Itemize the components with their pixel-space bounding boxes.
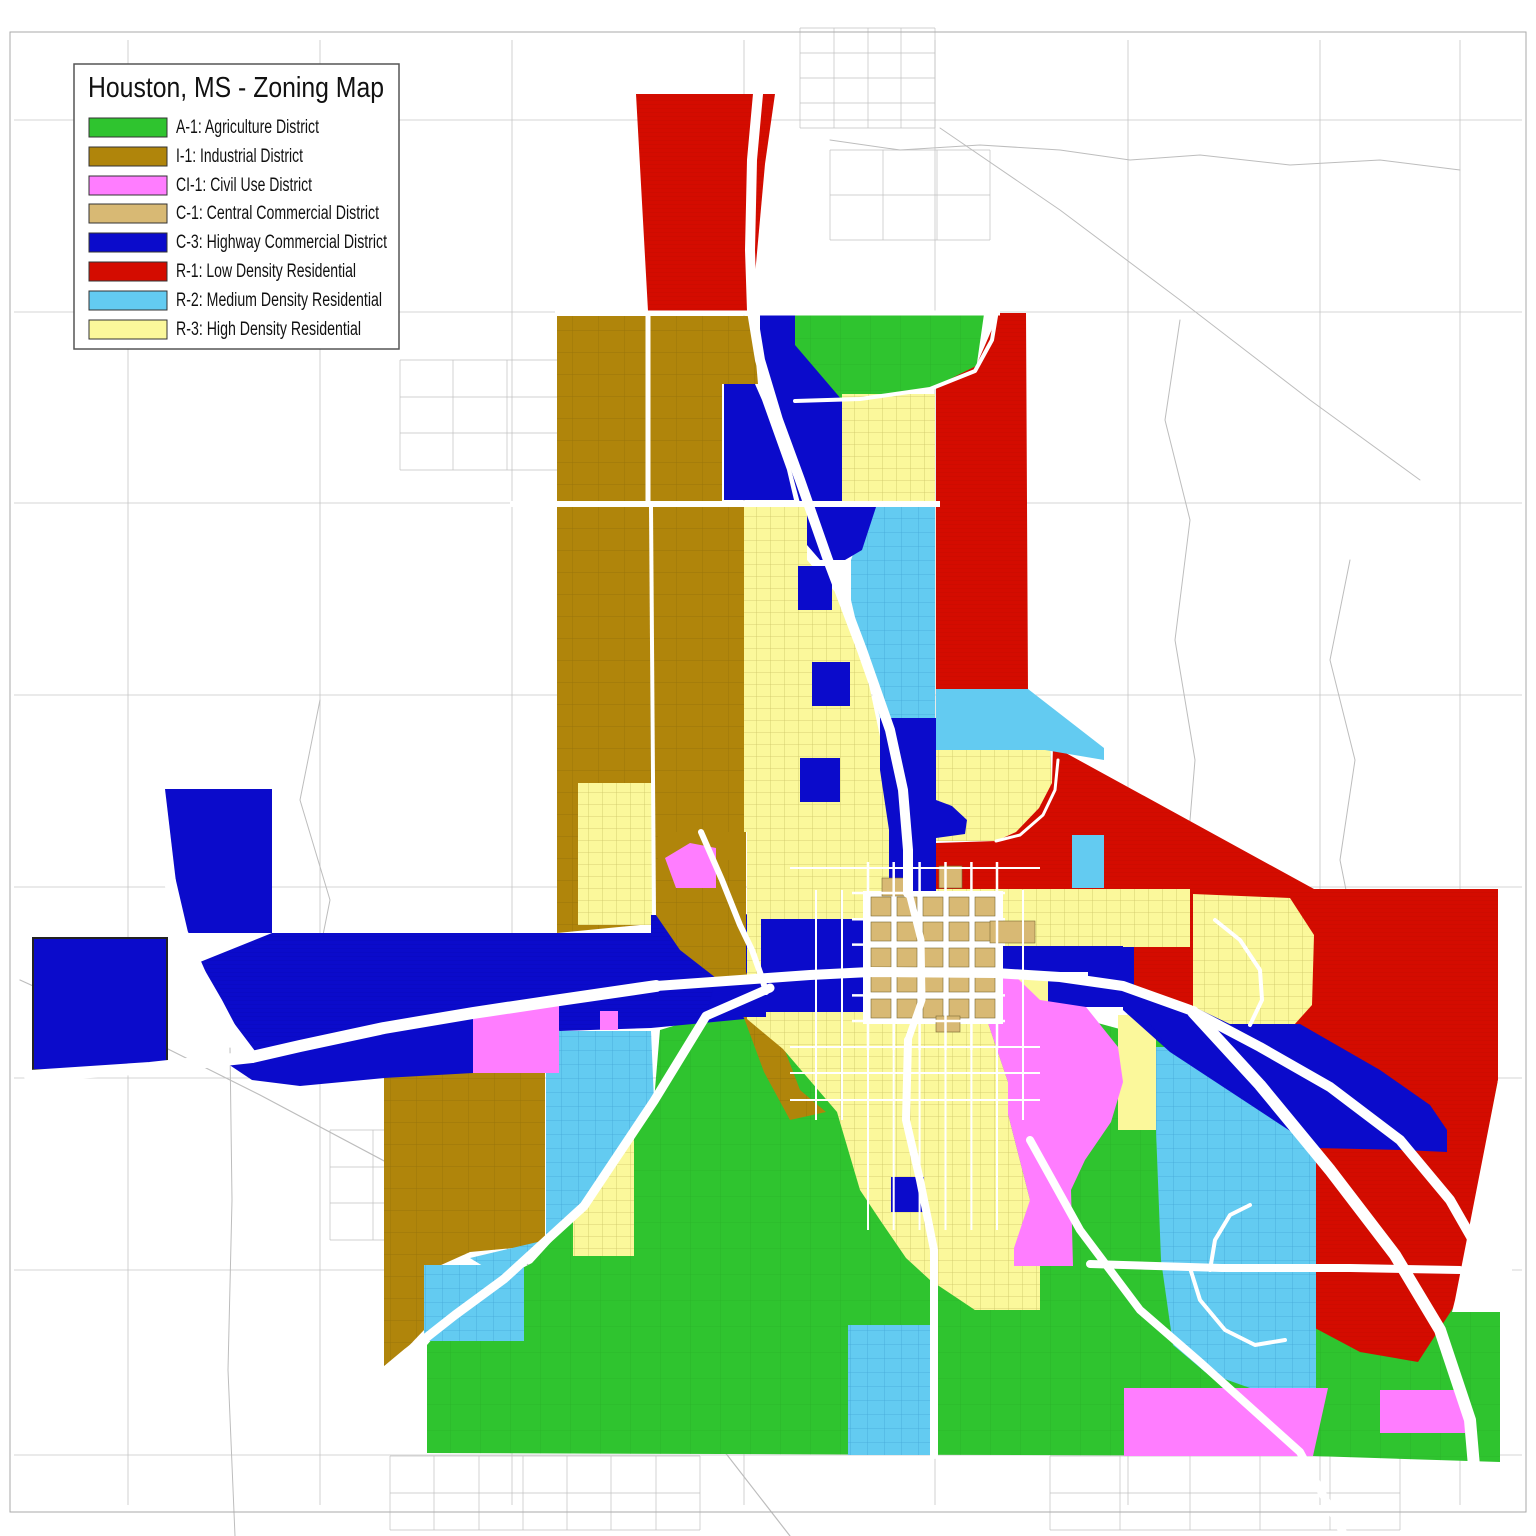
svg-text:C-3: Highway Commercial Distri: C-3: Highway Commercial District <box>176 232 388 253</box>
svg-text:CI-1: Civil Use District: CI-1: Civil Use District <box>176 175 313 196</box>
svg-text:A-1: Agriculture District: A-1: Agriculture District <box>176 117 320 138</box>
svg-text:Houston, MS - Zoning Map: Houston, MS - Zoning Map <box>88 72 384 104</box>
svg-text:R-1: Low Density Residential: R-1: Low Density Residential <box>176 261 356 282</box>
svg-text:R-2: Medium Density Residentia: R-2: Medium Density Residential <box>176 290 382 311</box>
svg-text:C-1: Central Commercial Distri: C-1: Central Commercial District <box>176 203 380 224</box>
svg-text:R-3: High Density Residential: R-3: High Density Residential <box>176 319 361 340</box>
svg-text:I-1: Industrial District: I-1: Industrial District <box>176 146 304 167</box>
